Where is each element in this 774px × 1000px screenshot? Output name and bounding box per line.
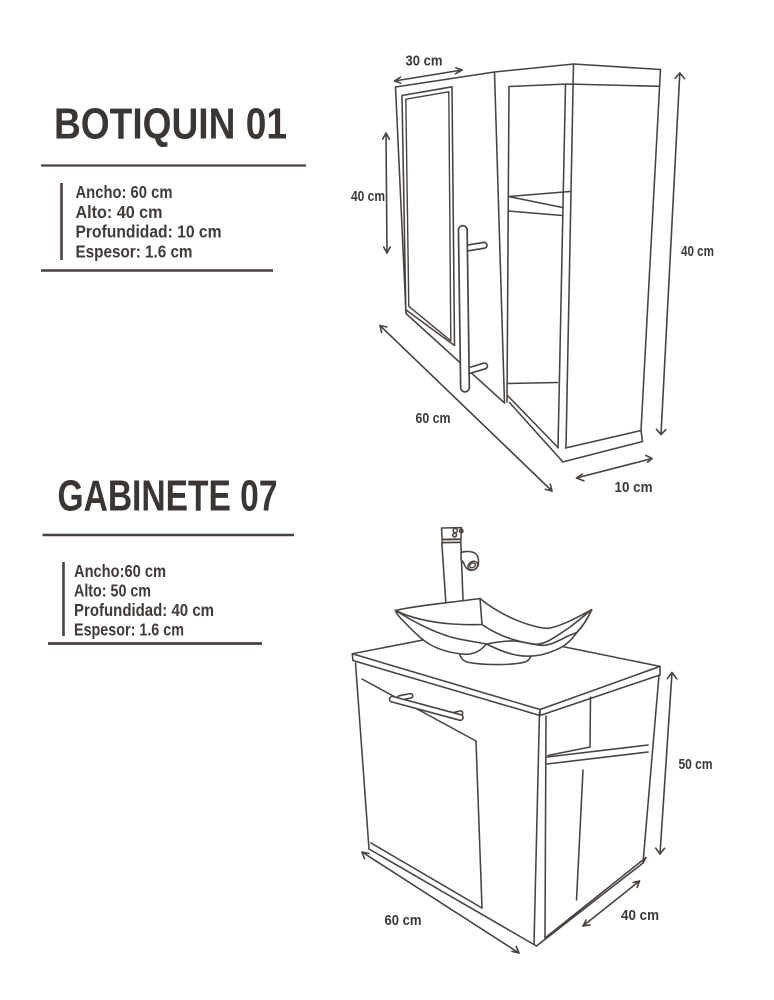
svg-text:Espesor: 1.6 cm: Espesor: 1.6 cm: [76, 241, 193, 261]
svg-text:50 cm: 50 cm: [679, 756, 713, 773]
svg-text:60 cm: 60 cm: [416, 410, 451, 427]
svg-text:Profundidad: 40 cm: Profundidad: 40 cm: [74, 600, 214, 620]
svg-text:Espesor: 1.6 cm: Espesor: 1.6 cm: [74, 619, 184, 639]
svg-text:40 cm: 40 cm: [351, 188, 385, 205]
svg-text:60 cm: 60 cm: [385, 912, 422, 929]
svg-text:GABINETE 07: GABINETE 07: [58, 472, 278, 521]
svg-text:30 cm: 30 cm: [406, 53, 443, 70]
svg-text:Ancho: 60 cm: Ancho: 60 cm: [76, 182, 173, 202]
svg-text:Profundidad: 10 cm: Profundidad: 10 cm: [76, 222, 222, 242]
svg-text:Alto: 50 cm: Alto: 50 cm: [74, 580, 151, 600]
svg-text:Ancho:60 cm: Ancho:60 cm: [74, 561, 166, 581]
svg-text:40 cm: 40 cm: [681, 243, 714, 260]
svg-text:BOTIQUIN 01: BOTIQUIN 01: [54, 100, 287, 149]
svg-text:10 cm: 10 cm: [615, 479, 653, 496]
svg-text:Alto: 40 cm: Alto: 40 cm: [76, 202, 163, 222]
svg-text:40 cm: 40 cm: [621, 907, 659, 924]
